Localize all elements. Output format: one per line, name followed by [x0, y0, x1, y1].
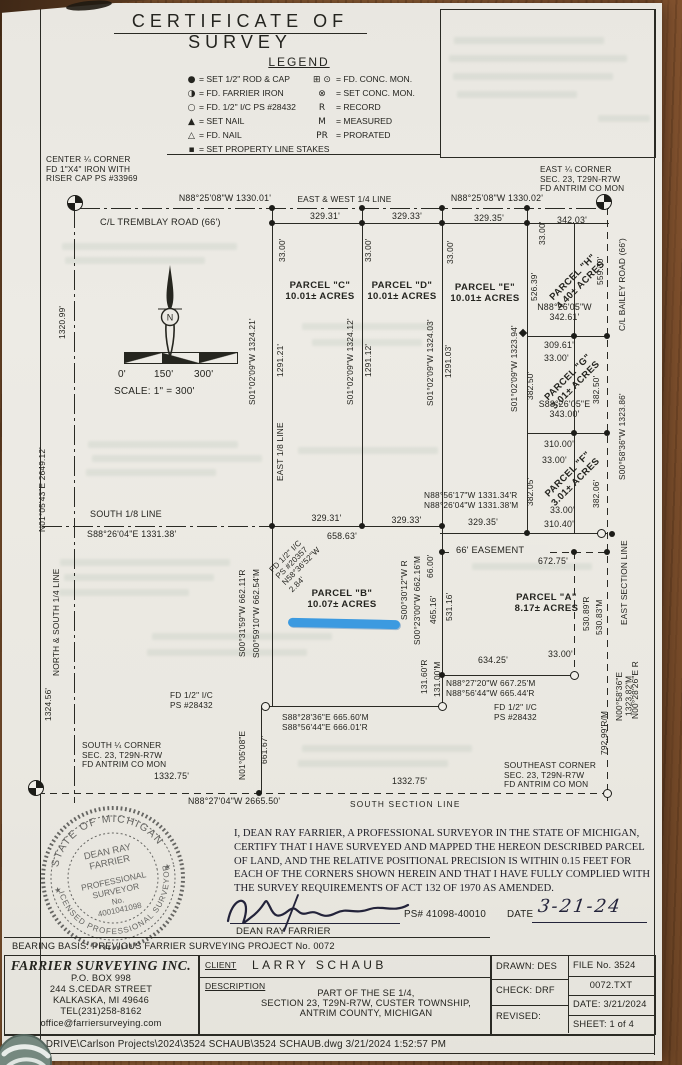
- scale-bar-segment: [199, 353, 237, 363]
- label-bearing-b-west-record: S00°31'59"W 662.11'R: [238, 553, 248, 673]
- company-phone: TEL(231)258-8162: [4, 1006, 198, 1016]
- survey-point: [604, 549, 610, 555]
- checked-by: CHECK: DRF: [496, 985, 566, 995]
- revision-box-divider: [568, 955, 569, 1033]
- company-name: FARRIER SURVEYING INC.: [4, 958, 198, 974]
- description-text: PART OF THE SE 1/4, SECTION 23, T29N-R7W…: [247, 988, 485, 1018]
- footer-rule-bottom: [4, 1053, 654, 1054]
- label-east-eighth-line: EAST 1/8 LINE: [276, 408, 286, 496]
- label-dim-329-33: 329.33': [372, 211, 442, 221]
- ghost-text: [298, 447, 438, 454]
- legend-item: ◑= FD. FARRIER IRON: [184, 88, 284, 99]
- scale-bar-segment: [125, 353, 162, 363]
- scale-bar-segment: [162, 353, 200, 363]
- label-bearing-eighth-record: N88°56'17"W 1331.34'R N88°26'04"W 1331.3…: [424, 491, 559, 510]
- survey-point: [269, 523, 275, 529]
- label-bearing-section-east-r: N00°28'26"E R: [631, 659, 641, 721]
- seal-star-right: ★: [163, 862, 172, 872]
- client-label: CLIENT: [205, 960, 250, 970]
- label-bearing-south-section: N88°27'04"W 2665.50': [188, 796, 353, 806]
- ghost-text: [302, 745, 472, 752]
- south-eighth-line-west: [42, 526, 272, 527]
- survey-point: [571, 549, 577, 555]
- legend-item: ●= SET 1/2" ROD & CAP: [184, 74, 290, 85]
- survey-point: [269, 205, 275, 211]
- found-iron-point: [597, 529, 606, 538]
- label-bearing-eh: S01°02'09"W 1323.94': [510, 303, 520, 435]
- page-title: CERTIFICATE OF SURVEY: [110, 11, 370, 53]
- label-dim-33: 33.00': [548, 649, 593, 659]
- north-arrow-icon: N: [148, 263, 192, 359]
- south-quarter-corner-monument-icon: [28, 780, 44, 796]
- property-stake-icon: ▪: [184, 145, 199, 155]
- parcel-a-south-line: [440, 675, 574, 676]
- label-dim-131-00m: 131.00'M: [433, 655, 443, 703]
- parcel-b-south-line: [266, 706, 442, 707]
- parcel-hg-line: [527, 336, 607, 337]
- label-seg-1291-21: 1291.21': [276, 328, 286, 393]
- south-eighth-line: [272, 526, 442, 527]
- handwritten-date: 3-21-24: [537, 897, 650, 918]
- rule: [490, 1005, 568, 1006]
- label-bearing-c-west: S01°02'09"W 1324.21': [248, 296, 258, 428]
- label-bearing-b-east-record: S00°30'12"W R: [400, 545, 410, 635]
- label-found-iron-28432: FD 1/2" I/C PS #28432: [494, 703, 566, 722]
- found-nail-icon: △: [184, 131, 199, 141]
- label-bearing-quarterline-west: N88°25'08"W 1330.01': [150, 193, 300, 203]
- farrier-iron-icon: ◑: [184, 89, 199, 99]
- label-south-quarter-corner: SOUTH ¼ CORNER SEC. 23, T29N-R7W FD ANTR…: [82, 741, 247, 770]
- legend-item: △= FD. NAIL: [184, 130, 242, 141]
- label-bearing-a-south: N88°27'20"W 667.25'M N88°56'44"W 665.44'…: [446, 679, 598, 698]
- label-dim-1332-75: 1332.75': [154, 771, 224, 781]
- label-dim-329-31: 329.31': [290, 211, 360, 221]
- date-field: DATE: 3/21/2024: [573, 999, 655, 1009]
- rule: [490, 979, 568, 980]
- label-bearing-de: S01°02'09"W 1324.03': [426, 297, 436, 429]
- label-dim-661-67: 661.67': [260, 721, 270, 779]
- label-dim-310-40: 310.40': [544, 519, 599, 529]
- label-dim-329-31: 329.31': [294, 513, 359, 523]
- north-south-quarter-line: [74, 208, 75, 803]
- survey-point: [439, 549, 445, 555]
- legend-item-label: = SET CONC. MON.: [336, 88, 415, 98]
- company-address-1: P.O. BOX 998: [4, 973, 198, 983]
- label-dim-33: 33.00': [544, 353, 589, 363]
- label-east-quarter-corner: EAST ¼ CORNER SEC. 23, T29N-R7W FD ANTRI…: [540, 165, 665, 194]
- label-dim-131-60r: 131.60'R: [420, 653, 430, 701]
- label-bearing-bailey: S00°58'36"W 1323.86': [618, 371, 628, 503]
- client-name: LARRY SCHAUB: [252, 958, 482, 972]
- survey-point: [524, 220, 530, 226]
- label-seg-1291-12: 1291.12': [364, 328, 374, 393]
- center-quarter-corner-monument-icon: [67, 195, 83, 211]
- parcel-gf-line: [527, 433, 607, 434]
- label-dim-530-83m: 530.83'M: [595, 589, 605, 645]
- file-txt: 0072.TXT: [568, 980, 654, 990]
- ghost-text: [60, 559, 230, 566]
- legend-item-label: = PRORATED: [336, 130, 391, 140]
- south-section-line: [38, 793, 609, 794]
- legend-item-label: = FD. FARRIER IRON: [199, 88, 284, 98]
- scale-bar: [124, 352, 238, 364]
- label-dim-329-35: 329.35': [452, 517, 514, 527]
- ghost-text: [147, 649, 307, 656]
- label-bearing-b-west-measured: S00°59'10"W 662.54'M: [252, 553, 262, 673]
- legend-item-label: = FD. CONC. MON.: [336, 74, 412, 84]
- survey-point: [524, 530, 530, 536]
- label-bearing-h-south: N88°26'05"W 342.61': [522, 302, 607, 322]
- label-dim-309-61: 309.61': [528, 340, 590, 350]
- file-number: FILE No. 3524: [573, 960, 653, 970]
- label-dim-310-00: 310.00': [528, 439, 590, 449]
- label-dim-1320-99: 1320.99': [58, 291, 68, 353]
- label-dim-329-35: 329.35': [454, 213, 524, 223]
- survey-point: [604, 333, 610, 339]
- label-center-quarter-corner: CENTER ¼ CORNER FD 1"X4" IRON WITH RISER…: [46, 155, 184, 184]
- scale-tick-300: 300': [194, 369, 224, 381]
- titleblock-rule: [4, 937, 490, 938]
- legend-item-label: = SET NAIL: [199, 116, 244, 126]
- bearing-basis: BEARING BASIS: PREVIOUS FARRIER SURVEYIN…: [12, 941, 482, 951]
- label-east-west-quarter-line: EAST & WEST 1/4 LINE: [287, 195, 402, 205]
- set-nail-icon: ▲: [184, 117, 199, 127]
- legend-item: PR= PRORATED: [308, 130, 391, 141]
- label-parcel-b: PARCEL "B" 10.07± ACRES: [298, 589, 386, 611]
- legend-item: ○= FD. 1/2" I/C PS #28432: [184, 102, 296, 113]
- label-dim-33: 33.00': [278, 231, 288, 269]
- label-bearing-cd: S01°02'09"W 1324.12': [346, 296, 356, 428]
- label-dim-33: 33.00': [364, 231, 374, 269]
- label-dim-531-16: 531.16': [445, 581, 455, 633]
- label-south-section-line: SOUTH SECTION LINE: [350, 800, 518, 810]
- legend-item-label: = SET PROPERTY LINE STAKES: [199, 144, 329, 154]
- legend-item: R= RECORD: [308, 102, 381, 113]
- title-underline: [114, 33, 367, 34]
- scale-text: SCALE: 1" = 300': [114, 386, 259, 398]
- label-bearing-n0105-08: N01°05'08"E: [238, 717, 248, 793]
- label-found-iron-28432: FD 1/2" I/C PS #28432: [170, 691, 248, 710]
- sheet-number: SHEET: 1 of 4: [573, 1019, 655, 1029]
- revised: REVISED:: [496, 1011, 566, 1021]
- client-desc-divider: [198, 977, 490, 978]
- found-iron-cap-icon: ○: [184, 103, 199, 113]
- set-conc-mon-icon: ⊗: [308, 89, 336, 99]
- label-dim-33: 33.00': [542, 455, 587, 465]
- record-abbrev: R: [308, 103, 336, 113]
- label-east-section-line: EAST SECTION LINE: [620, 529, 630, 637]
- prorated-abbrev: PR: [308, 131, 336, 141]
- legend-item-label: = RECORD: [336, 102, 381, 112]
- drawing-file-path: DATA DRIVE\Carlson Projects\2024\3524 SC…: [18, 1039, 578, 1050]
- survey-sheet-paper: CERTIFICATE OF SURVEY LEGEND ●= SET 1/2"…: [2, 3, 662, 1061]
- label-dim-1332-75: 1332.75': [392, 776, 462, 786]
- label-bearing-b-south: S88°28'36"E 665.60'M S88°56'44"E 666.01'…: [282, 713, 444, 732]
- north-letter: N: [167, 313, 174, 323]
- label-dim-33: 33.00': [538, 217, 548, 249]
- rule: [568, 976, 654, 977]
- ghost-text: [92, 455, 262, 462]
- drawn-by: DRAWN: DES: [496, 961, 566, 971]
- set-rod-cap-icon: ●: [184, 75, 199, 85]
- blue-highlighter-mark: [288, 618, 400, 629]
- photo-of-survey-document: CERTIFICATE OF SURVEY LEGEND ●= SET 1/2"…: [0, 0, 682, 1065]
- label-dim-672-75: 672.75': [538, 556, 598, 566]
- survey-point: [524, 205, 530, 211]
- scale-tick-0: 0': [118, 369, 138, 381]
- survey-point: [571, 333, 577, 339]
- southeast-corner-monument-icon: [603, 789, 612, 798]
- label-south-eighth-line: SOUTH 1/8 LINE: [90, 509, 205, 519]
- label-bearing-b-east-measured: S00°23'00"W 662.16'M: [413, 545, 423, 655]
- label-dim-559-30: 559.30': [596, 243, 606, 298]
- footer-rule-top: [4, 1035, 654, 1036]
- legend-item: ▪= SET PROPERTY LINE STAKES: [184, 144, 329, 155]
- measured-abbrev: M: [308, 117, 336, 127]
- label-dim-329-33: 329.33': [374, 515, 439, 525]
- survey-point: [571, 430, 577, 436]
- legend-item: ▲= SET NAIL: [184, 116, 244, 127]
- ghost-text: [88, 441, 238, 448]
- found-conc-mon-icon: ⊞ ⊙: [308, 75, 336, 85]
- top-right-panel-box: [440, 9, 656, 158]
- label-tremblay-road: C/L TREMBLAY ROAD (66'): [100, 217, 280, 228]
- label-dim-66-00: 66.00': [426, 548, 436, 584]
- legend-title: LEGEND: [252, 55, 346, 69]
- survey-point: [359, 523, 365, 529]
- legend-item-label: = SET 1/2" ROD & CAP: [199, 74, 290, 84]
- label-seg-1291-03: 1291.03': [444, 329, 454, 394]
- label-southeast-corner: SOUTHEAST CORNER SEC. 23, T29N-R7W FD AN…: [504, 761, 626, 790]
- label-dim-1324-56: 1324.56': [44, 673, 54, 735]
- legend-item-label: = FD. NAIL: [199, 130, 242, 140]
- survey-point: [439, 523, 445, 529]
- signature-line: [230, 923, 400, 924]
- round-logo-sticker: [0, 1026, 58, 1065]
- date-line: [532, 922, 647, 923]
- legend-item: ⊗= SET CONC. MON.: [308, 88, 415, 99]
- label-dim-465-16: 465.16': [429, 587, 439, 633]
- found-iron-point: [261, 702, 270, 711]
- rule: [568, 995, 654, 996]
- company-address-2: 244 S.CEDAR STREET: [4, 984, 198, 994]
- label-dim-634-25: 634.25': [478, 655, 548, 665]
- label-bailey-road: C/L BAILEY ROAD (66'): [618, 225, 628, 345]
- label-bearing-g-south: S88°26'05"E 343.00': [522, 399, 607, 419]
- rule: [568, 1015, 654, 1016]
- label-bearing-quarterline-east: N88°25'08"W 1330.02': [422, 193, 572, 203]
- set-nail-point: [519, 329, 527, 337]
- label-bearing-eighth: S88°26'04"E 1331.38': [87, 529, 222, 539]
- legend-item-label: = MEASURED: [336, 116, 392, 126]
- survey-point: [604, 430, 610, 436]
- ghost-text: [62, 243, 237, 250]
- label-dim-33: 33.00': [446, 233, 456, 271]
- ps-number: PS# 41098-40010: [404, 909, 514, 920]
- label-parcel-e: PARCEL "E" 10.01± ACRES: [444, 283, 526, 305]
- label-dim-792-99: 792.99'R/M: [600, 701, 610, 765]
- label-dim-530-89r: 530.89'R: [582, 586, 592, 642]
- east-quarter-corner-monument-icon: [596, 194, 612, 210]
- ghost-text: [298, 760, 448, 767]
- legend-item-label: = FD. 1/2" I/C PS #28432: [199, 102, 296, 112]
- label-bearing-ns-quarter: N01°05'43"E 2649.12': [38, 421, 48, 559]
- legend-item: M= MEASURED: [308, 116, 392, 127]
- seal-star-left: ★: [53, 885, 62, 895]
- ghost-text: [86, 469, 216, 476]
- ghost-text: [59, 589, 189, 596]
- company-address-3: KALKASKA, MI 49646: [4, 995, 198, 1005]
- label-found-iron-20357: FD 1/2" I/C PS #20357 N58°36'52"W 2.84': [268, 517, 345, 594]
- ghost-text: [64, 574, 214, 581]
- survey-point: [609, 531, 615, 537]
- legend-item: ⊞ ⊙= FD. CONC. MON.: [308, 74, 412, 85]
- scale-tick-150: 150': [154, 369, 184, 381]
- label-easement: 66' EASEMENT: [454, 545, 548, 556]
- east-eighth-line: [272, 208, 273, 706]
